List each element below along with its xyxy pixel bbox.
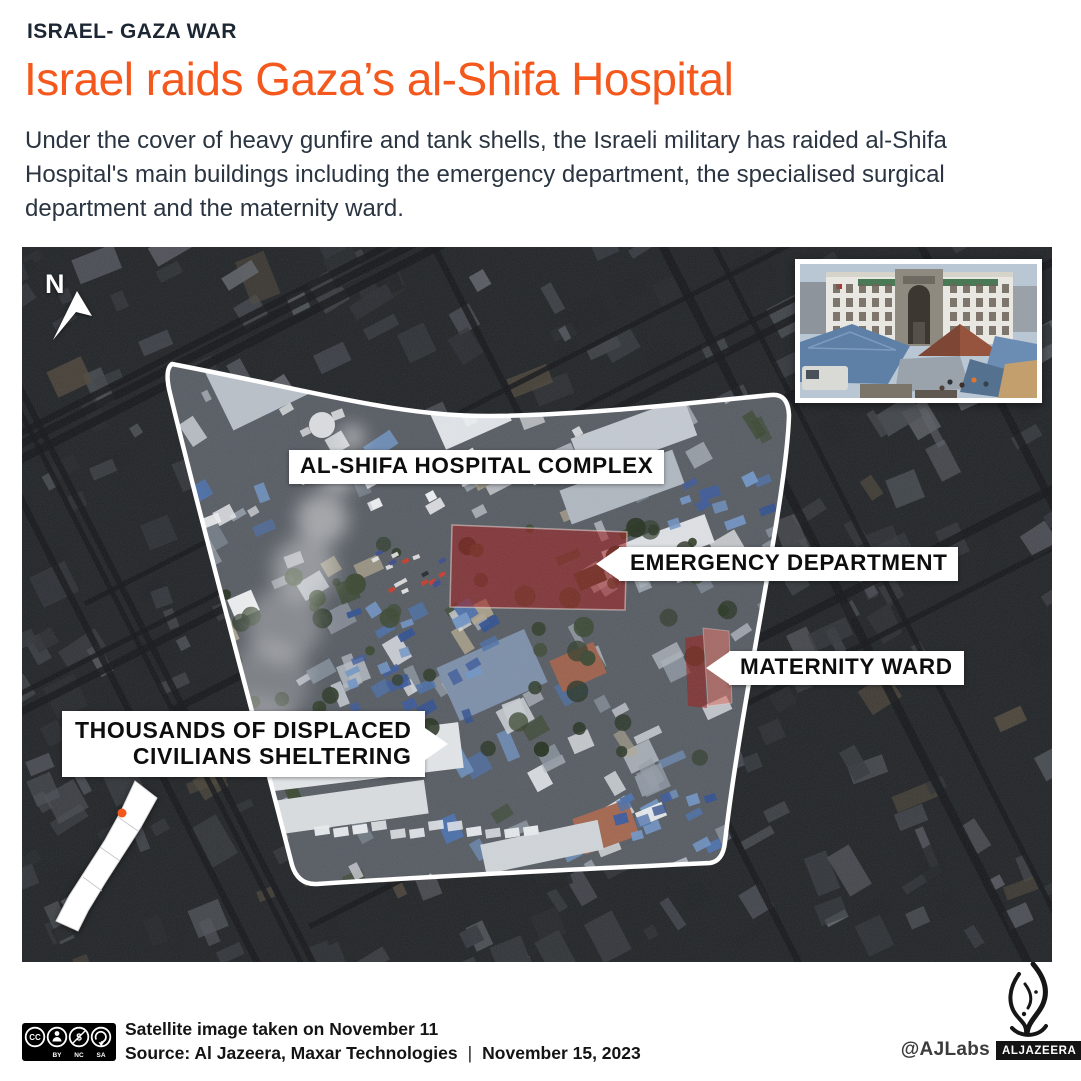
label-displaced-line2: CIVILIANS SHELTERING [75, 743, 412, 769]
hospital-photo-inset [795, 259, 1042, 403]
cc-glyph: CC [29, 1033, 41, 1042]
kicker-headline: ISRAEL- GAZA WAR [27, 20, 237, 44]
source-line: Source: Al Jazeera, Maxar Technologies|N… [125, 1041, 641, 1065]
by-label: BY [52, 1052, 62, 1059]
label-hospital-complex-text: AL-SHIFA HOSPITAL COMPLEX [300, 453, 653, 478]
label-emergency-text: EMERGENCY DEPARTMENT [630, 550, 947, 575]
label-displaced-line1: THOUSANDS OF DISPLACED [75, 717, 412, 743]
label-arrow-right-icon [425, 728, 448, 760]
satellite-map: N AL-SHIFA HOSPITAL COMPLEX EMERGENCY DE… [22, 247, 1052, 962]
label-emergency-department: EMERGENCY DEPARTMENT [619, 547, 958, 581]
source-text: Source: Al Jazeera, Maxar Technologies [125, 1043, 458, 1063]
north-arrow-icon [53, 291, 97, 343]
gaza-city-marker [118, 809, 127, 818]
source-separator: | [468, 1043, 473, 1063]
publish-date: November 15, 2023 [482, 1043, 641, 1063]
sa-label: SA [96, 1052, 105, 1059]
nc-label: NC [74, 1052, 84, 1059]
label-maternity-text: MATERNITY WARD [740, 654, 953, 679]
gaza-strip-locator-map [38, 777, 170, 939]
label-arrow-left-icon [596, 548, 619, 580]
aljazeera-wordmark: ALJAZEERA [996, 1041, 1081, 1060]
intro-paragraph: Under the cover of heavy gunfire and tan… [25, 124, 1025, 226]
label-displaced-civilians: THOUSANDS OF DISPLACED CIVILIANS SHELTER… [62, 711, 425, 777]
label-arrow-left-icon [706, 652, 729, 684]
creative-commons-license-icon: CC $ BY NC SA [22, 1023, 116, 1061]
footer-credits: Satellite image taken on November 11 Sou… [125, 1017, 641, 1065]
label-maternity-ward: MATERNITY WARD [729, 651, 964, 685]
ajlabs-handle: @AJLabs [880, 1039, 990, 1061]
aljazeera-flame-logo [1000, 962, 1054, 1040]
label-hospital-complex: AL-SHIFA HOSPITAL COMPLEX [289, 450, 664, 484]
satellite-date-note: Satellite image taken on November 11 [125, 1017, 641, 1041]
hospital-photo [800, 264, 1037, 398]
page-title: Israel raids Gaza’s al-Shifa Hospital [24, 52, 733, 106]
